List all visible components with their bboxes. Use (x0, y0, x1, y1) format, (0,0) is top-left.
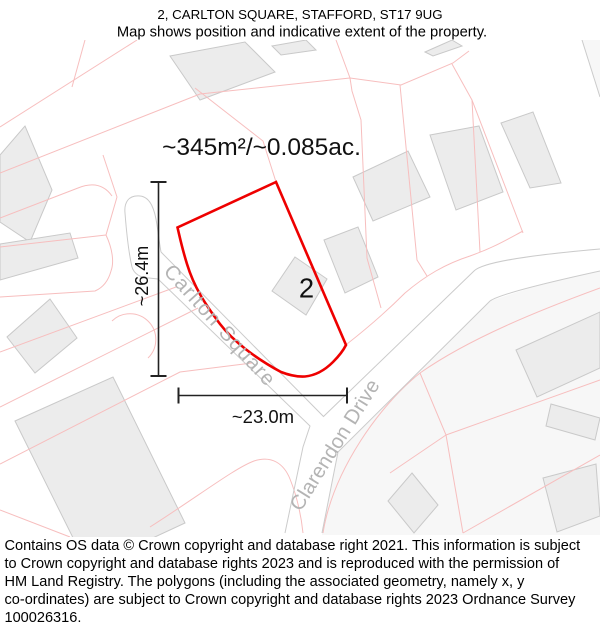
svg-text:~26.4m: ~26.4m (132, 246, 152, 307)
svg-text:Contains OS data © Crown copyr: Contains OS data © Crown copyright and d… (5, 538, 581, 554)
svg-text:co-ordinates) are subject to C: co-ordinates) are subject to Crown copyr… (5, 592, 577, 608)
svg-text:~23.0m: ~23.0m (232, 406, 294, 427)
svg-text:to Crown copyright and databas: to Crown copyright and database rights 2… (5, 556, 561, 572)
svg-text:2: 2 (299, 273, 314, 304)
svg-text:Map shows position and indicat: Map shows position and indicative extent… (117, 24, 487, 40)
svg-text:100026316.: 100026316. (5, 610, 82, 625)
svg-text:HM Land Registry. The polygons: HM Land Registry. The polygons (includin… (5, 574, 526, 590)
svg-text:~345m²/~0.085ac.: ~345m²/~0.085ac. (162, 134, 361, 161)
svg-text:2, CARLTON SQUARE, STAFFORD, S: 2, CARLTON SQUARE, STAFFORD, ST17 9UG (157, 7, 442, 22)
